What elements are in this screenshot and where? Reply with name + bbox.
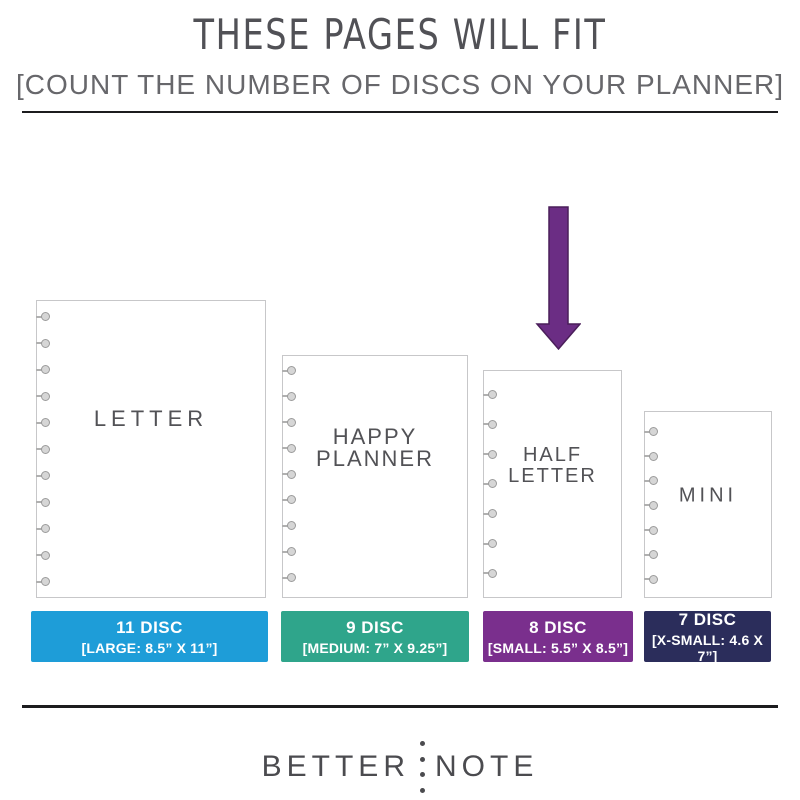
disc-hole-icon <box>36 551 50 560</box>
disc-count-text: 7 DISC <box>644 610 771 630</box>
logo-text-note: NOTE <box>435 750 538 784</box>
infographic-canvas: THESE PAGES WILL FIT [COUNT THE NUMBER O… <box>0 0 800 800</box>
disc-hole-icon <box>36 498 50 507</box>
dimensions-text: [LARGE: 8.5” X 11”] <box>31 640 268 656</box>
brand-logo: BETTER NOTE <box>0 737 800 797</box>
disc-ring <box>287 470 296 479</box>
disc-hole-icon <box>644 550 658 559</box>
disc-ring <box>41 365 50 374</box>
disc-hole-icon <box>644 427 658 436</box>
disc-ring <box>41 445 50 454</box>
disc-ring <box>649 526 658 535</box>
disc-ring <box>649 550 658 559</box>
disc-column <box>36 312 50 586</box>
disc-ring <box>287 392 296 401</box>
disc-hole-icon <box>36 471 50 480</box>
disc-ring <box>41 471 50 480</box>
disc-ring <box>488 420 497 429</box>
planner-page-happy-planner: HAPPYPLANNER <box>282 355 468 598</box>
size-label-half-letter: 8 DISC [SMALL: 5.5” X 8.5”] <box>483 611 633 662</box>
disc-hole-icon <box>36 365 50 374</box>
disc-hole-icon <box>282 495 296 504</box>
page-name: HAPPYPLANNER <box>283 426 467 470</box>
disc-hole-icon <box>483 569 497 578</box>
disc-ring <box>41 524 50 533</box>
disc-ring <box>287 521 296 530</box>
disc-ring <box>649 476 658 485</box>
disc-hole-icon <box>282 521 296 530</box>
down-arrow-icon <box>535 206 581 351</box>
dimensions-text: [MEDIUM: 7” X 9.25”] <box>281 640 469 656</box>
disc-hole-icon <box>483 509 497 518</box>
disc-hole-icon <box>36 392 50 401</box>
disc-ring <box>287 547 296 556</box>
disc-ring <box>287 366 296 375</box>
logo-colon-icon <box>420 741 425 793</box>
disc-ring <box>488 539 497 548</box>
disc-ring <box>41 339 50 348</box>
size-label-mini: 7 DISC [X-SMALL: 4.6 X 7”] <box>644 611 771 662</box>
disc-ring <box>649 575 658 584</box>
disc-count-text: 9 DISC <box>281 618 469 638</box>
disc-hole-icon <box>282 392 296 401</box>
disc-ring <box>41 498 50 507</box>
top-divider <box>22 111 778 113</box>
dimensions-text: [X-SMALL: 4.6 X 7”] <box>644 632 771 664</box>
disc-hole-icon <box>36 445 50 454</box>
disc-hole-icon <box>644 452 658 461</box>
disc-ring <box>41 392 50 401</box>
disc-ring <box>488 390 497 399</box>
page-name: LETTER <box>37 407 265 431</box>
disc-ring <box>287 573 296 582</box>
dimensions-text: [SMALL: 5.5” X 8.5”] <box>483 640 633 656</box>
disc-hole-icon <box>36 577 50 586</box>
page-title: THESE PAGES WILL FIT <box>80 10 720 59</box>
disc-column <box>282 366 296 582</box>
disc-hole-icon <box>282 470 296 479</box>
logo-text-better: BETTER <box>262 750 410 784</box>
disc-hole-icon <box>36 312 50 321</box>
size-label-happy-planner: 9 DISC [MEDIUM: 7” X 9.25”] <box>281 611 469 662</box>
disc-ring <box>649 452 658 461</box>
disc-ring <box>41 577 50 586</box>
page-subtitle: [COUNT THE NUMBER OF DISCS ON YOUR PLANN… <box>0 69 800 101</box>
page-name: HALFLETTER <box>484 445 621 487</box>
disc-count-text: 11 DISC <box>31 618 268 638</box>
disc-ring <box>649 427 658 436</box>
disc-ring <box>41 551 50 560</box>
disc-hole-icon <box>644 526 658 535</box>
planner-page-half-letter: HALFLETTER <box>483 370 622 598</box>
planner-page-mini: MINI <box>644 411 772 598</box>
disc-hole-icon <box>644 476 658 485</box>
bottom-divider <box>22 705 778 708</box>
disc-count-text: 8 DISC <box>483 618 633 638</box>
disc-hole-icon <box>282 547 296 556</box>
disc-hole-icon <box>282 366 296 375</box>
planner-page-letter: LETTER <box>36 300 266 598</box>
disc-hole-icon <box>644 575 658 584</box>
disc-hole-icon <box>36 339 50 348</box>
disc-hole-icon <box>483 539 497 548</box>
disc-hole-icon <box>483 390 497 399</box>
size-label-letter: 11 DISC [LARGE: 8.5” X 11”] <box>31 611 268 662</box>
disc-hole-icon <box>483 420 497 429</box>
disc-hole-icon <box>282 573 296 582</box>
disc-ring <box>488 509 497 518</box>
disc-hole-icon <box>36 524 50 533</box>
disc-ring <box>41 312 50 321</box>
disc-ring <box>287 495 296 504</box>
page-name: MINI <box>645 486 771 507</box>
disc-ring <box>488 569 497 578</box>
